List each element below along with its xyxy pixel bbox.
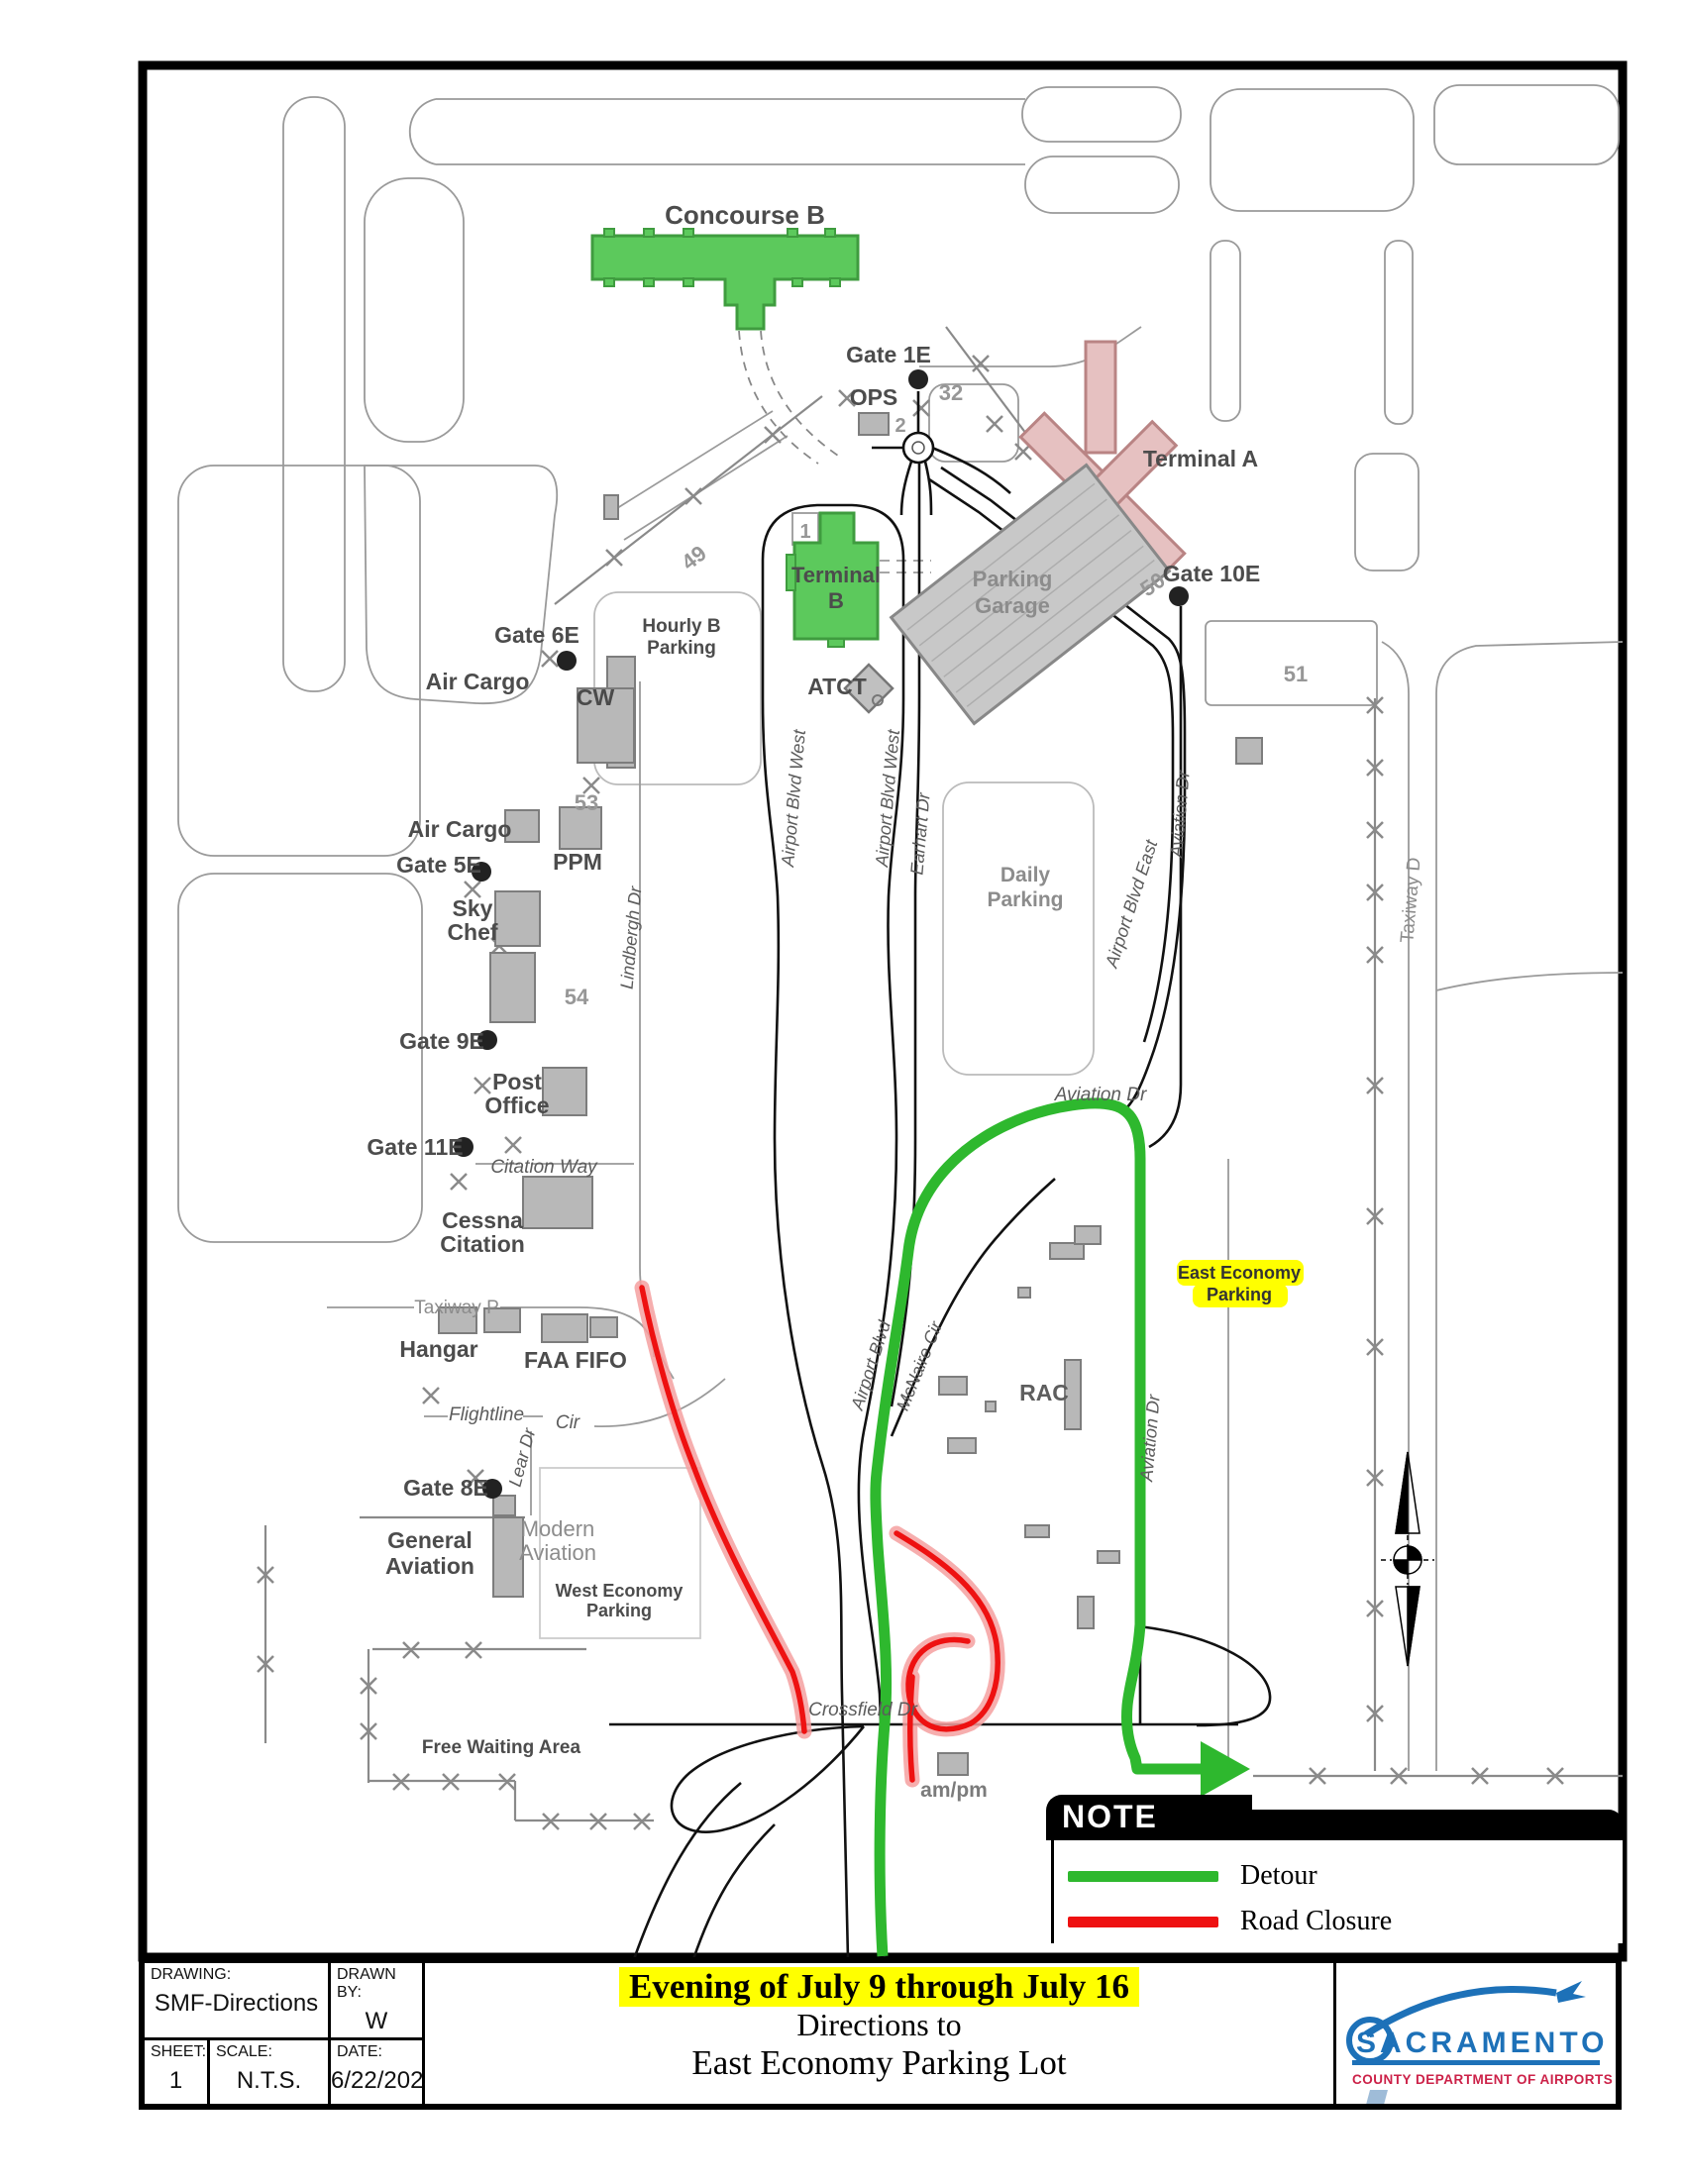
detour-line-swatch	[1068, 1871, 1218, 1882]
label-cessna-2: Citation	[440, 1231, 525, 1257]
drawn-by-cell: DRAWN BY: W Escobar	[331, 1963, 425, 2040]
label-lindbergh-dr: Lindbergh Dr	[617, 884, 646, 989]
detour-label: Detour	[1240, 1860, 1317, 1892]
label-daily-1: Daily	[1000, 864, 1051, 886]
label-pad-2: 2	[895, 415, 905, 437]
title-block: DRAWING: SMF-Directions DRAWN BY: W Esco…	[139, 1957, 1622, 2110]
label-ppm: PPM	[553, 849, 602, 875]
label-gate-9e: Gate 9E	[399, 1028, 484, 1054]
label-daily-2: Parking	[987, 888, 1063, 911]
label-earhart-dr: Earhart Dr	[906, 791, 933, 876]
label-sky-1: Sky	[453, 895, 493, 921]
label-pad-53: 53	[575, 790, 598, 815]
logo-underline	[1352, 2060, 1600, 2065]
label-gate-11e: Gate 11E	[367, 1134, 463, 1160]
drawn-by-label: DRAWN BY:	[331, 1963, 422, 2002]
label-air-cargo-2: Air Cargo	[408, 816, 512, 842]
label-atct: ATCT	[807, 674, 867, 699]
label-terminal-b-2: B	[828, 588, 844, 613]
label-air-cargo-1: Air Cargo	[426, 669, 530, 694]
label-general-1: General	[387, 1527, 473, 1553]
label-east-economy-1: East Economy	[1178, 1263, 1301, 1283]
logo-cell: SACRAMENTO COUNTY DEPARTMENT OF AIRPORTS	[1336, 1963, 1616, 2104]
label-general-2: Aviation	[385, 1553, 474, 1579]
fence-x-marks	[258, 356, 1563, 1829]
label-post-1: Post	[492, 1069, 542, 1094]
drawing-sheet: East Economy Parking Concourse B Gate 1E…	[0, 0, 1684, 2179]
label-taxiway-p: Taxiway P	[414, 1298, 499, 1318]
label-modern-1: Modern	[521, 1516, 595, 1541]
concourse-b-building	[592, 236, 858, 329]
label-pad-49: 49	[677, 541, 711, 575]
label-pad-54: 54	[565, 985, 589, 1009]
label-aviation-dr-top: Aviation Dr	[1054, 1085, 1147, 1105]
label-gate-6e: Gate 6E	[494, 622, 579, 648]
label-cw: CW	[577, 684, 615, 710]
date-value: 6/22/2023	[331, 2067, 422, 2095]
label-hangar: Hangar	[399, 1336, 477, 1362]
label-sky-2: Chef	[447, 919, 497, 945]
label-hourly-1: Hourly B	[642, 616, 720, 637]
scale-label: SCALE:	[210, 2040, 328, 2061]
sheet-title-line3: East Economy Parking Lot	[425, 2044, 1333, 2083]
sheet-value: 1	[145, 2067, 207, 2095]
label-rac: RAC	[1019, 1380, 1069, 1405]
label-airport-blvd-east: Airport Blvd East	[1102, 837, 1162, 972]
label-faa-fifo: FAA FIFO	[524, 1347, 627, 1373]
closure-line-swatch	[1068, 1917, 1218, 1927]
label-crossfield: Crossfield Dr	[808, 1700, 917, 1720]
sheet-title-cell: Evening of July 9 through July 16 Direct…	[425, 1963, 1336, 2104]
gate-6e-marker	[557, 651, 577, 671]
airplane-icon	[1556, 1981, 1586, 2003]
label-concourse-b: Concourse B	[665, 200, 825, 230]
date-label: DATE:	[331, 2040, 422, 2061]
label-post-2: Office	[484, 1092, 549, 1118]
scale-cell: SCALE: N.T.S.	[210, 2040, 331, 2104]
logo-subtitle: COUNTY DEPARTMENT OF AIRPORTS	[1352, 2072, 1613, 2087]
label-gate-5e: Gate 5E	[396, 852, 481, 878]
label-east-economy-2: Parking	[1207, 1285, 1272, 1304]
detour-arrowhead	[1201, 1741, 1250, 1797]
label-lear-dr: Lear Dr	[505, 1425, 540, 1489]
label-aviation-dr-mid: Aviation Dr	[1166, 769, 1194, 859]
east-economy-highlight: East Economy Parking	[1177, 1260, 1304, 1307]
drawing-cell: DRAWING: SMF-Directions	[145, 1963, 331, 2040]
sheet-title-highlight: Evening of July 9 through July 16	[619, 1967, 1139, 2007]
legend-detour-row: Detour	[1068, 1860, 1623, 1892]
label-cir: Cir	[556, 1412, 580, 1433]
label-terminal-b-1: Terminal	[791, 563, 881, 587]
label-west-economy-2: Parking	[586, 1601, 652, 1620]
label-pad-1: 1	[799, 521, 810, 543]
note-box: NOTE Detour Road Closure	[1046, 1795, 1623, 1943]
label-west-economy-1: West Economy	[556, 1581, 684, 1601]
legend-closure-row: Road Closure	[1068, 1906, 1623, 1937]
sheet-label: SHEET:	[145, 2040, 207, 2061]
label-airport-blvd-west-1: Airport Blvd West	[778, 728, 809, 869]
label-modern-2: Aviation	[519, 1540, 596, 1565]
north-arrow	[1381, 1452, 1434, 1666]
gate-10e-marker	[1169, 586, 1189, 606]
drawing-value: SMF-Directions	[145, 1990, 328, 2018]
label-hourly-2: Parking	[647, 638, 716, 659]
note-title: NOTE	[1062, 1799, 1158, 1835]
label-gate-10e: Gate 10E	[1163, 561, 1260, 586]
note-legend: Detour Road Closure	[1051, 1840, 1623, 1943]
label-terminal-a: Terminal A	[1143, 446, 1258, 471]
drawing-label: DRAWING:	[145, 1963, 328, 1984]
sacramento-logo: SACRAMENTO COUNTY DEPARTMENT OF AIRPORTS	[1336, 1963, 1616, 2104]
label-gate-1e: Gate 1E	[846, 342, 931, 367]
logo-blue-bar	[1362, 2090, 1388, 2104]
label-pad-51: 51	[1284, 662, 1308, 686]
label-free-waiting: Free Waiting Area	[422, 1737, 581, 1758]
label-taxiway-d: Taxiway D	[1397, 857, 1424, 944]
label-garage-1: Parking	[973, 567, 1053, 591]
gate-1e-marker	[908, 369, 928, 389]
label-ops: OPS	[850, 384, 898, 410]
scale-value: N.T.S.	[210, 2067, 328, 2095]
sheet-title-line2: Directions to	[425, 2007, 1333, 2044]
label-gate-8e: Gate 8E	[403, 1475, 488, 1501]
label-cessna-1: Cessna	[442, 1207, 523, 1233]
label-flightline: Flightline	[449, 1404, 524, 1425]
date-cell: DATE: 6/22/2023	[331, 2040, 425, 2104]
logo-name: SACRAMENTO	[1356, 2027, 1608, 2059]
label-ampm: am/pm	[920, 1779, 988, 1802]
sheet-cell: SHEET: 1	[145, 2040, 210, 2104]
label-garage-2: Garage	[975, 593, 1050, 618]
note-header-strip	[1234, 1810, 1623, 1840]
label-citation-way: Citation Way	[490, 1157, 598, 1178]
closure-label: Road Closure	[1240, 1906, 1392, 1937]
label-pad-32: 32	[939, 380, 963, 405]
